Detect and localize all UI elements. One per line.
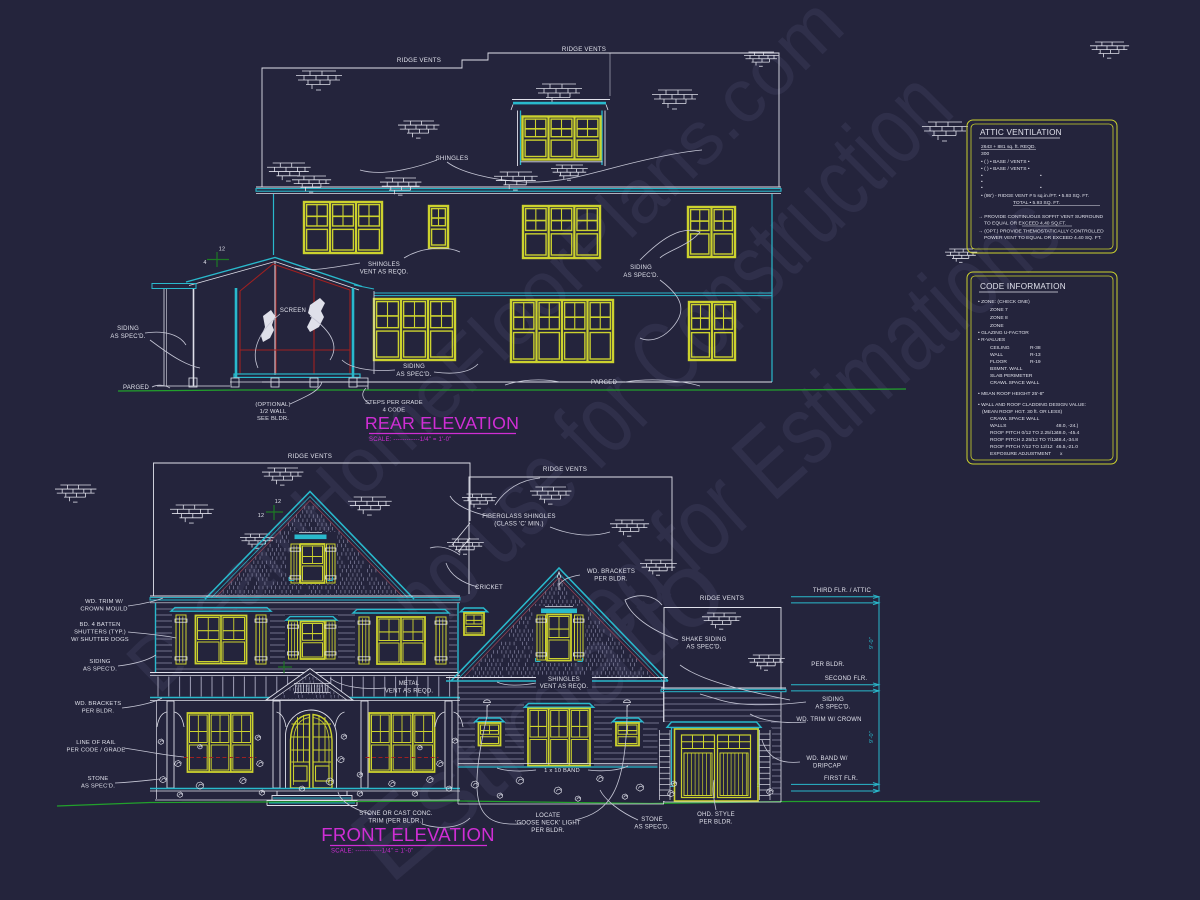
- svg-text:STONE: STONE: [88, 776, 109, 782]
- svg-text:SIDING: SIDING: [117, 326, 139, 332]
- svg-text:CEILING: CEILING: [990, 345, 1010, 351]
- svg-text:WALL: WALL: [990, 352, 1003, 358]
- svg-text:REAR ELEVATION: REAR ELEVATION: [365, 413, 519, 433]
- svg-text:PER BLDR.: PER BLDR.: [699, 820, 733, 826]
- svg-text:1/2 WALL: 1/2 WALL: [260, 409, 287, 415]
- svg-text:WD. BRACKETS: WD. BRACKETS: [75, 701, 122, 707]
- svg-text:ZONE 7: ZONE 7: [990, 307, 1008, 313]
- svg-text:CROWN MOULD: CROWN MOULD: [80, 607, 127, 613]
- svg-text:BD. 4 BATTEN: BD. 4 BATTEN: [80, 622, 121, 628]
- svg-text:AS SPEC'D.: AS SPEC'D.: [110, 334, 145, 340]
- svg-text:SIDING: SIDING: [822, 697, 844, 703]
- svg-text:• GLAZING U-FACTOR: • GLAZING U-FACTOR: [978, 330, 1029, 336]
- svg-text:PARGED: PARGED: [123, 385, 150, 391]
- svg-text:• MEAN ROOF HEIGHT 25'-8": • MEAN ROOF HEIGHT 25'-8": [978, 391, 1045, 397]
- svg-text:300: 300: [981, 151, 989, 157]
- svg-text:LOCATE: LOCATE: [536, 813, 561, 819]
- svg-text:AS SPEC'D.: AS SPEC'D.: [81, 784, 115, 790]
- svg-text:SHUTTERS (TYP.): SHUTTERS (TYP.): [74, 630, 126, 636]
- svg-text:SHINGLES: SHINGLES: [436, 155, 469, 162]
- svg-text:• (95') - RIDGE VENT # 5 sq.i: • (95') - RIDGE VENT # 5 sq.in./FT. • 5.…: [981, 193, 1089, 199]
- svg-text:2643 + 881 sq. ft. REQD.: 2643 + 881 sq. ft. REQD.: [981, 144, 1036, 150]
- svg-text:TO EQUAL OR EXCEED 4.40 SQ.FT: TO EQUAL OR EXCEED 4.40 SQ.FT.: [984, 221, 1066, 227]
- svg-text:BSMNT. WALL: BSMNT. WALL: [990, 366, 1023, 372]
- svg-text:FIRST FLR.: FIRST FLR.: [824, 776, 858, 782]
- svg-text:R-38: R-38: [1030, 345, 1041, 351]
- svg-text:SECOND FLR.: SECOND FLR.: [825, 676, 868, 682]
- svg-text:SEE BLDR.: SEE BLDR.: [257, 416, 289, 422]
- svg-text:RIDGE VENTS: RIDGE VENTS: [562, 46, 606, 53]
- svg-text:'GOOSE NECK' LIGHT: 'GOOSE NECK' LIGHT: [515, 821, 581, 827]
- svg-text:ROOF PITCH 7/12 TO 12/12: ROOF PITCH 7/12 TO 12/12: [990, 444, 1053, 450]
- svg-text:WD. BAND W/: WD. BAND W/: [806, 756, 847, 762]
- svg-text:VENT AS REQD.: VENT AS REQD.: [360, 270, 409, 276]
- svg-text:THIRD FLR. / ATTIC: THIRD FLR. / ATTIC: [813, 588, 872, 594]
- svg-text:RIDGE VENTS: RIDGE VENTS: [288, 453, 332, 460]
- svg-text:AS SPEC'D.: AS SPEC'D.: [634, 825, 669, 831]
- svg-text:SIDING: SIDING: [630, 265, 652, 271]
- svg-text:(OPTIONAL): (OPTIONAL): [255, 402, 290, 408]
- svg-text:SIDING: SIDING: [89, 659, 110, 665]
- svg-text:DRIPCAP: DRIPCAP: [813, 764, 841, 770]
- svg-text:RIDGE VENTS: RIDGE VENTS: [397, 57, 441, 64]
- svg-text:• ZONE: (CHECK ONE): • ZONE: (CHECK ONE): [978, 299, 1030, 305]
- svg-text:TOTAL • 5.93 SQ. FT.: TOTAL • 5.93 SQ. FT.: [1013, 200, 1060, 206]
- svg-text:12: 12: [219, 247, 226, 253]
- svg-text:METAL: METAL: [399, 681, 420, 687]
- svg-text:RIDGE VENTS: RIDGE VENTS: [700, 595, 744, 602]
- svg-text:WD. TRIM W/ CROWN: WD. TRIM W/ CROWN: [796, 717, 861, 723]
- svg-text:48.4,-34.8: 48.4,-34.8: [1056, 437, 1078, 443]
- svg-text:WD. BRACKETS: WD. BRACKETS: [587, 569, 635, 575]
- svg-text:→ PROVIDE CONTINUOUS SOFFIT VE: → PROVIDE CONTINUOUS SOFFIT VENT SURROUN…: [978, 214, 1104, 220]
- svg-text:LINE OF RAIL: LINE OF RAIL: [76, 740, 116, 746]
- svg-text:(MEAN ROOF HGT. 30 ft. OR LESS: (MEAN ROOF HGT. 30 ft. OR LESS): [982, 409, 1063, 415]
- svg-text:46.5,-21.0: 46.5,-21.0: [1056, 444, 1078, 450]
- svg-text:STONE: STONE: [641, 817, 663, 823]
- svg-text:(CLASS 'C' MIN.): (CLASS 'C' MIN.): [494, 522, 544, 528]
- svg-text:AS SPEC'D.: AS SPEC'D.: [396, 372, 431, 378]
- svg-text:WD. TRIM W/: WD. TRIM W/: [85, 599, 123, 605]
- svg-text:PER BLDR.: PER BLDR.: [82, 709, 115, 715]
- svg-text:STONE OR CAST CONC.: STONE OR CAST CONC.: [359, 811, 433, 817]
- svg-text:•: •: [981, 174, 983, 179]
- svg-text:SCALE: ------------1/4" = 1'-0: SCALE: ------------1/4" = 1'-0": [331, 849, 413, 855]
- svg-text:PARGED: PARGED: [591, 380, 618, 386]
- svg-text:PER BLDR.: PER BLDR.: [531, 828, 565, 834]
- svg-text:ROOF PITCH 2.25/12 TO 7/12: ROOF PITCH 2.25/12 TO 7/12: [990, 437, 1057, 443]
- svg-text:WALLS: WALLS: [990, 423, 1007, 429]
- svg-text:•: •: [981, 180, 983, 185]
- svg-text:SHINGLES: SHINGLES: [368, 262, 400, 268]
- svg-text:9'-0": 9'-0": [869, 637, 875, 649]
- svg-text:12: 12: [258, 513, 265, 519]
- svg-text:POWER VENT TO EQUAL OR EXCEED: POWER VENT TO EQUAL OR EXCEED 4.40 SQ. F…: [984, 235, 1102, 241]
- svg-text:AS SPEC'D.: AS SPEC'D.: [815, 705, 850, 711]
- svg-text:48.0, -45.4: 48.0, -45.4: [1056, 430, 1080, 436]
- svg-text:RIDGE VENTS: RIDGE VENTS: [543, 466, 587, 473]
- svg-text:SCALE: ------------1/4" = 1'-0: SCALE: ------------1/4" = 1'-0": [369, 437, 451, 443]
- svg-text:AS SPEC'D.: AS SPEC'D.: [623, 273, 658, 279]
- svg-text:CRICKET: CRICKET: [475, 585, 503, 591]
- svg-text:EXPOSURE ADJUSTMENT: EXPOSURE ADJUSTMENT: [990, 451, 1051, 457]
- svg-text:PER CODE / GRADE: PER CODE / GRADE: [67, 748, 126, 754]
- svg-text:SLAB PERIMETER: SLAB PERIMETER: [990, 373, 1033, 379]
- svg-text:STEPS PER GRADE: STEPS PER GRADE: [365, 400, 423, 406]
- svg-text:ZONE: ZONE: [990, 323, 1004, 329]
- svg-text:W/ SHUTTER DOGS: W/ SHUTTER DOGS: [71, 637, 129, 643]
- svg-text:•: •: [981, 186, 983, 191]
- svg-text:• WALL AND ROOF CLADDING DESIG: • WALL AND ROOF CLADDING DESIGN VALUE:: [978, 402, 1086, 408]
- svg-text:R-19: R-19: [1030, 359, 1041, 365]
- svg-text:1 x 10 BAND: 1 x 10 BAND: [544, 768, 580, 774]
- svg-text:12: 12: [275, 499, 282, 505]
- svg-text:SIDING: SIDING: [403, 364, 425, 370]
- svg-text:VENT AS REQD.: VENT AS REQD.: [540, 684, 589, 690]
- svg-text:→ (OPT.) PROVIDE THEMOSTATICAL: → (OPT.) PROVIDE THEMOSTATICALLY CONTROL…: [978, 229, 1104, 235]
- svg-text:AS SPEC'D.: AS SPEC'D.: [686, 645, 721, 651]
- svg-text:FRONT ELEVATION: FRONT ELEVATION: [321, 824, 494, 845]
- svg-text:SHINGLES: SHINGLES: [548, 677, 580, 683]
- svg-text:PER BLDR.: PER BLDR.: [594, 577, 628, 583]
- svg-text:ROOF PITCH 0/12 TO 2.25/12: ROOF PITCH 0/12 TO 2.25/12: [990, 430, 1057, 436]
- svg-text:ATTIC VENTILATION: ATTIC VENTILATION: [980, 128, 1062, 137]
- svg-text:OHD. STYLE: OHD. STYLE: [697, 812, 735, 818]
- svg-text:FIBERGLASS SHINGLES: FIBERGLASS SHINGLES: [482, 514, 556, 520]
- svg-text:CRAWL SPACE WALL: CRAWL SPACE WALL: [990, 380, 1040, 386]
- svg-text:48.0, -24.): 48.0, -24.): [1056, 423, 1079, 429]
- svg-text:4: 4: [203, 260, 206, 266]
- svg-text:PER BLDR.: PER BLDR.: [811, 662, 845, 668]
- svg-text:• R-VALUES: • R-VALUES: [978, 337, 1006, 343]
- svg-text:•: •: [1040, 174, 1042, 179]
- svg-text:SCREEN: SCREEN: [280, 308, 306, 314]
- svg-text:ZONE 8: ZONE 8: [990, 315, 1008, 321]
- svg-text:• ( ) • BASE: • ( ) • BASE / VENTS •: [981, 159, 1030, 165]
- svg-text:SHAKE SIDING: SHAKE SIDING: [681, 637, 726, 643]
- svg-text:CRAWL SPACE WALL: CRAWL SPACE WALL: [990, 416, 1040, 422]
- svg-text:VENT AS REQD.: VENT AS REQD.: [385, 689, 434, 695]
- svg-text:9'-0": 9'-0": [869, 731, 875, 743]
- svg-text:• ( ) • BASE: • ( ) • BASE / VENTS •: [981, 166, 1030, 172]
- svg-text:FLOOR: FLOOR: [990, 359, 1007, 365]
- svg-text:AS SPEC'D.: AS SPEC'D.: [83, 667, 117, 673]
- svg-text:R-13: R-13: [1030, 352, 1041, 358]
- svg-text:CODE INFORMATION: CODE INFORMATION: [980, 282, 1066, 291]
- svg-text:•: •: [1040, 186, 1042, 191]
